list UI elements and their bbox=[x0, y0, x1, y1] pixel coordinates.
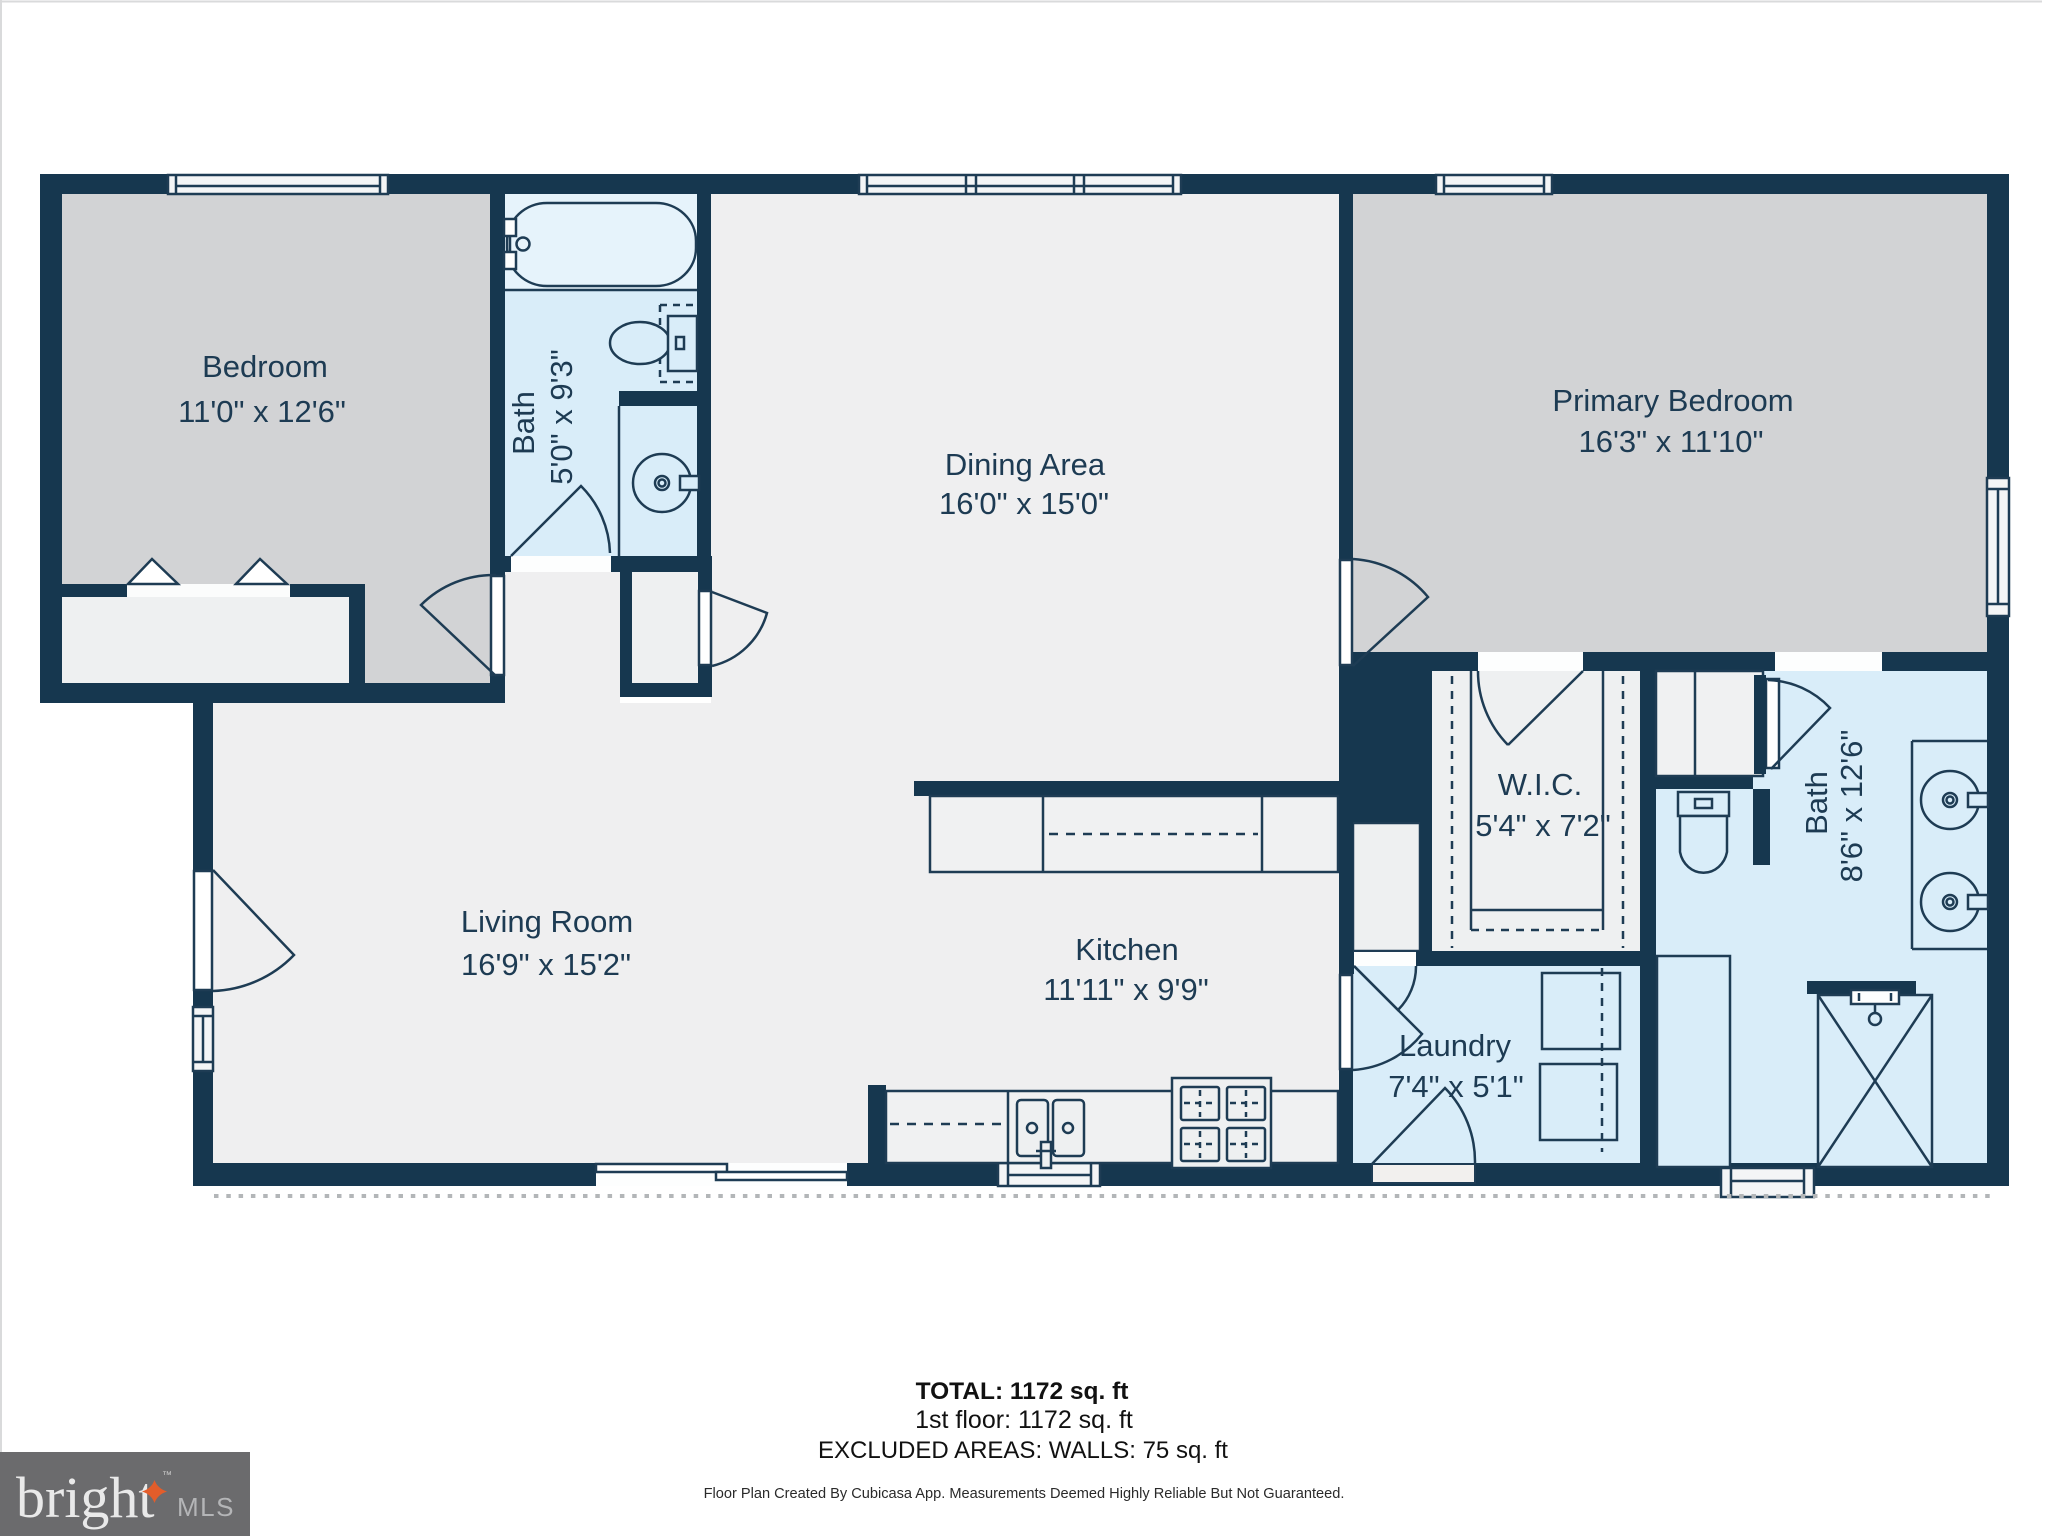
svg-text:Laundry: Laundry bbox=[1399, 1028, 1512, 1063]
svg-text:Living Room: Living Room bbox=[461, 904, 633, 939]
svg-text:Bath: Bath bbox=[506, 391, 541, 455]
svg-text:TOTAL: 1172 sq. ft: TOTAL: 1172 sq. ft bbox=[916, 1378, 1129, 1405]
svg-text:Primary Bedroom: Primary Bedroom bbox=[1552, 383, 1793, 418]
svg-text:MLS: MLS bbox=[177, 1492, 235, 1522]
svg-text:Dining Area: Dining Area bbox=[945, 447, 1106, 482]
svg-text:bright: bright bbox=[16, 1465, 155, 1530]
svg-text:Floor Plan Created By Cubicasa: Floor Plan Created By Cubicasa App. Meas… bbox=[704, 1486, 1345, 1502]
svg-text:11'0" x 12'6": 11'0" x 12'6" bbox=[178, 394, 346, 429]
svg-text:™: ™ bbox=[162, 1470, 172, 1481]
svg-text:11'11" x 9'9": 11'11" x 9'9" bbox=[1043, 972, 1208, 1007]
svg-text:Kitchen: Kitchen bbox=[1075, 932, 1178, 967]
svg-text:5'4" x 7'2": 5'4" x 7'2" bbox=[1475, 808, 1611, 843]
svg-text:1st floor: 1172 sq. ft: 1st floor: 1172 sq. ft bbox=[915, 1406, 1133, 1434]
svg-text:W.I.C.: W.I.C. bbox=[1498, 767, 1582, 802]
svg-text:EXCLUDED AREAS: WALLS: 75 sq.: EXCLUDED AREAS: WALLS: 75 sq. ft bbox=[818, 1437, 1228, 1464]
svg-text:Bath: Bath bbox=[1799, 771, 1834, 835]
svg-text:16'9" x 15'2": 16'9" x 15'2" bbox=[461, 947, 631, 982]
svg-text:8'6" x 12'6": 8'6" x 12'6" bbox=[1834, 730, 1869, 883]
svg-text:7'4" x 5'1": 7'4" x 5'1" bbox=[1388, 1069, 1524, 1104]
svg-text:5'0" x 9'3": 5'0" x 9'3" bbox=[544, 349, 579, 485]
svg-text:16'3" x 11'10": 16'3" x 11'10" bbox=[1579, 424, 1764, 459]
svg-text:Bedroom: Bedroom bbox=[202, 349, 328, 384]
svg-text:16'0" x 15'0": 16'0" x 15'0" bbox=[939, 486, 1109, 521]
